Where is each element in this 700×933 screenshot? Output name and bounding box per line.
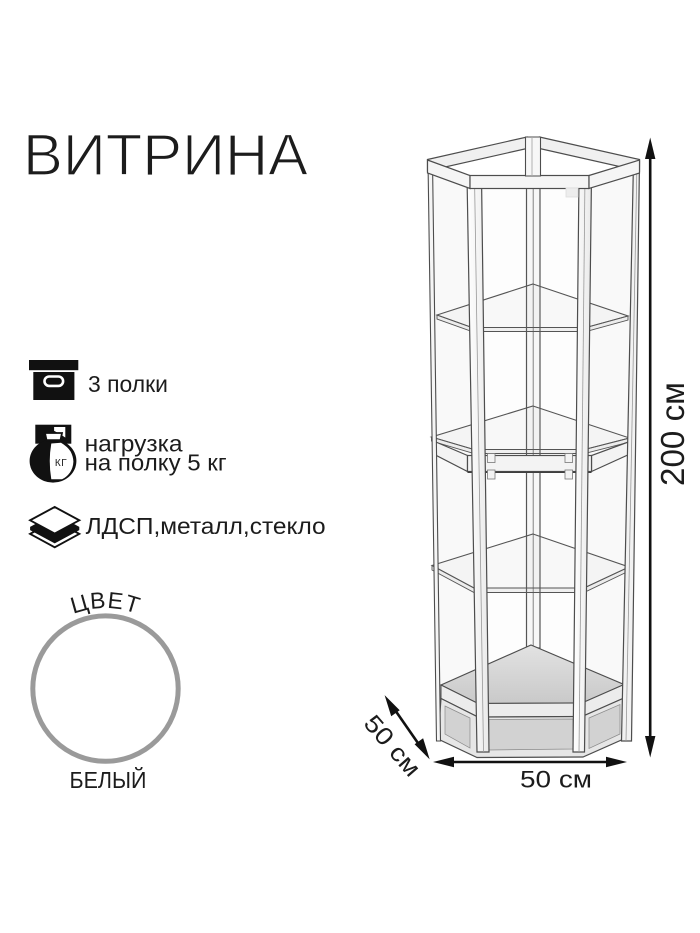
svg-text:50 см: 50 см — [358, 710, 426, 782]
svg-text:3 полки: 3 полки — [88, 371, 168, 397]
svg-text:БЕЛЫЙ: БЕЛЫЙ — [70, 766, 147, 793]
svg-text:200 см: 200 см — [654, 382, 691, 486]
svg-text:ВИТРИНА: ВИТРИНА — [23, 123, 308, 188]
svg-text:на полку 5 кг: на полку 5 кг — [85, 450, 227, 476]
svg-text:ЛДСП,металл,стекло: ЛДСП,металл,стекло — [86, 513, 326, 539]
svg-text:КГ: КГ — [55, 458, 67, 469]
svg-text:50 см: 50 см — [520, 767, 592, 794]
